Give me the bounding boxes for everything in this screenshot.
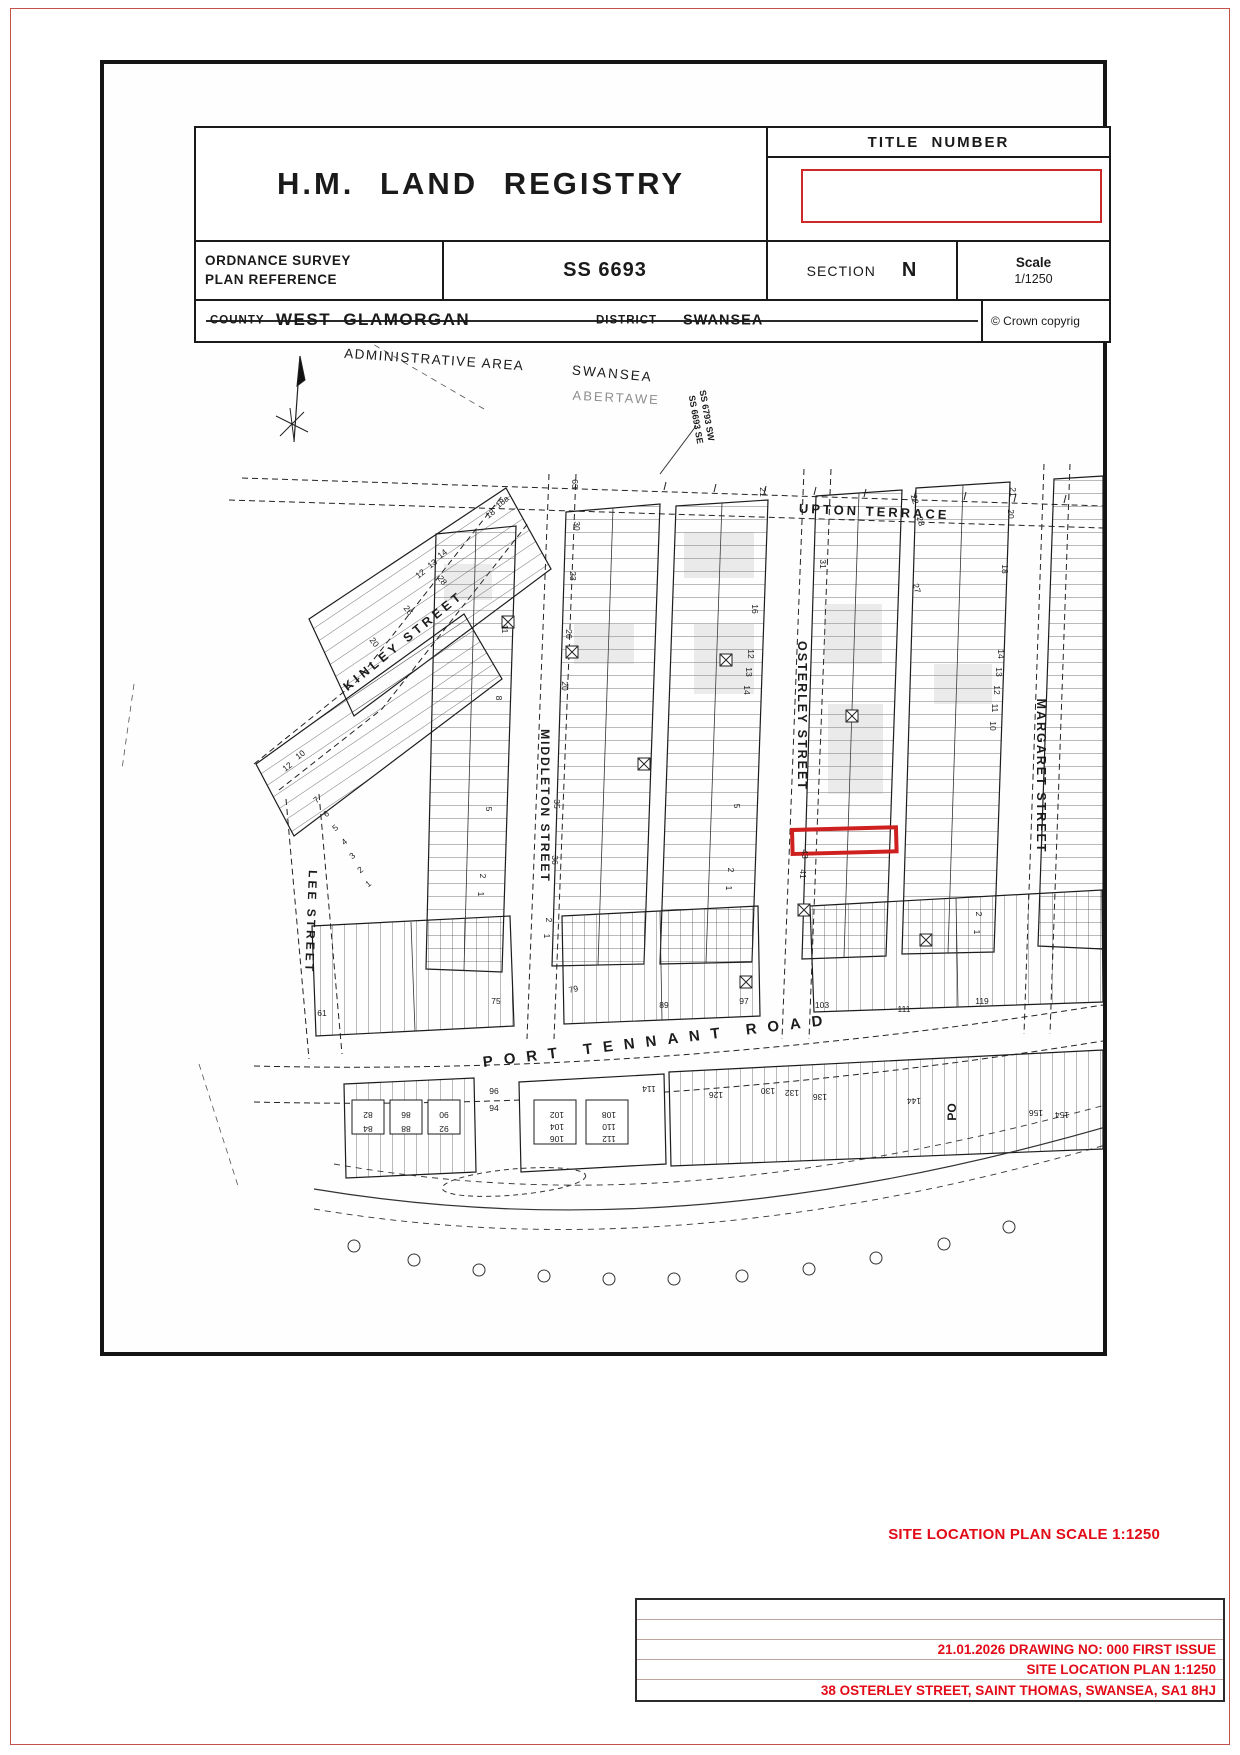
map-plot-number: 14 (996, 649, 1006, 659)
map-plot-number: 2 (478, 874, 488, 879)
map-plot-number: 20 (560, 681, 570, 691)
north-arrow-icon (276, 356, 308, 442)
map-plot-number: 14 (742, 685, 752, 695)
map-plot-number: 5 (484, 807, 494, 812)
map-plot-number: 2 (355, 864, 365, 875)
map-street-label: PO (945, 1103, 959, 1120)
map-plot-number: 86 (401, 1110, 411, 1120)
map-plot-number: SWANSEA (571, 363, 653, 385)
map-plot-number: 82 (363, 1110, 373, 1120)
map-plot-number: 114 (642, 1084, 656, 1094)
map-plot-number: 5 (330, 822, 340, 833)
map-plot-number: 1 (542, 934, 552, 939)
map-plot-number: 16 (750, 604, 760, 614)
map-plot-number: 5 (732, 804, 742, 809)
header-row-3: COUNTY WEST GLAMORGAN DISTRICT SWANSEA ©… (196, 299, 1109, 341)
map-plot-number: 3 (347, 850, 357, 861)
map-plot-number: 11 (990, 704, 1000, 713)
map-plot-number: 2 (544, 918, 554, 923)
title-number-label: TITLE NUMBER (768, 128, 1109, 158)
scale-value: 1/1250 (1014, 271, 1052, 287)
map-plot-number: 1 (724, 886, 734, 891)
land-registry-header: H.M. LAND REGISTRY TITLE NUMBER ORDNANCE… (194, 126, 1111, 343)
map-plot-number: 89 (659, 1000, 669, 1010)
map-plot-number: 41 (798, 869, 808, 879)
map-street-label: OSTERLEY STREET (795, 641, 809, 791)
map-plot-number: 8 (494, 696, 504, 701)
map-plot-number: 90 (439, 1110, 449, 1120)
map-plot-number: 21 (1008, 487, 1018, 497)
grid-ref-tick (660, 426, 696, 474)
map-plot-number: 144 (907, 1096, 921, 1106)
county-value: WEST GLAMORGAN (276, 310, 470, 330)
map-plot-number: 130 (761, 1086, 775, 1096)
map-plot-number: 23 (568, 571, 578, 581)
map-plot-number: 104 (550, 1122, 564, 1132)
scanned-map-sheet: PORT TENNANT ROAD ADMINISTRATIVE AREASWA… (100, 60, 1107, 1356)
trees (348, 1221, 1015, 1285)
scale-cell: Scale 1/1250 (956, 242, 1109, 299)
map-plot-number: 156 (1029, 1108, 1043, 1118)
map-plot-number: 61 (317, 1008, 327, 1018)
map-plot-number: 1 (476, 892, 486, 897)
title-number-body (768, 158, 1109, 240)
section-value: N (902, 259, 917, 282)
map-plot-number: 2 (726, 868, 736, 873)
map-plot-number: 4 (339, 836, 349, 847)
map-plot-number: 18 (1000, 564, 1010, 574)
district-label: DISTRICT (596, 315, 657, 327)
map-plot-number: 11 (500, 625, 510, 634)
map-plot-number: 132 (785, 1088, 799, 1098)
map-plot-number: ABERTAWE (572, 388, 660, 408)
map-plot-number: ADMINISTRATIVE AREA (344, 346, 525, 374)
map-plot-number: 111 (898, 1004, 911, 1014)
map-plot-number: 10 (988, 721, 998, 731)
map-plot-number: 30 (572, 521, 582, 531)
map-plot-number: 26 (564, 629, 574, 639)
map-plot-number: 102 (550, 1110, 564, 1120)
map-plot-number: 12 (992, 685, 1002, 695)
map-plot-number: 97 (739, 996, 749, 1006)
map-plot-number: 112 (602, 1134, 616, 1144)
map-plot-number: 119 (975, 996, 989, 1006)
county-label: COUNTY (210, 315, 265, 327)
housing-blocks (256, 476, 1103, 1178)
map-street-label: MARGARET STREET (1034, 699, 1048, 854)
map-plot-number: 13 (994, 667, 1004, 677)
header-row-1: H.M. LAND REGISTRY TITLE NUMBER (196, 128, 1109, 240)
map-plot-number: 108 (602, 1110, 616, 1120)
map-plot-number: 94 (489, 1103, 499, 1113)
site-location-plan-scale-note: SITE LOCATION PLAN SCALE 1:1250 (888, 1526, 1160, 1543)
crown-copyright: © Crown copyrig (981, 301, 1109, 341)
title-block-line-2: SITE LOCATION PLAN 1:1250 (637, 1660, 1223, 1680)
map-plot-number: 36 (550, 855, 560, 865)
section-label: SECTION (807, 263, 876, 279)
map-plot-number: 1 (972, 930, 982, 935)
map-street-label: MIDDLETON STREET (538, 729, 552, 883)
map-plot-number: 1 (363, 878, 373, 889)
title-number-redbox (801, 169, 1102, 223)
os-plan-reference-label: ORDNANCE SURVEY PLAN REFERENCE (196, 242, 444, 299)
title-block-line-3: 38 OSTERLEY STREET, SAINT THOMAS, SWANSE… (637, 1680, 1223, 1700)
map-plot-number: 106 (550, 1134, 564, 1144)
map-plot-number: 43 (800, 849, 810, 859)
map-plot-number: 35 (552, 799, 562, 809)
os-ref-line2: PLAN REFERENCE (205, 271, 442, 289)
map-plot-number: 136 (813, 1092, 827, 1102)
os-plan-reference-value: SS 6693 (444, 242, 766, 299)
section-cell: SECTION N (766, 242, 956, 299)
title-block-line-1: 21.01.2026 DRAWING NO: 000 FIRST ISSUE (637, 1640, 1223, 1660)
map-plot-number: 84 (363, 1124, 373, 1134)
map-plot-number: 31 (818, 559, 828, 569)
map-plot-number: 154 (1055, 1110, 1069, 1120)
title-number-cell: TITLE NUMBER (768, 128, 1109, 240)
map-plot-number: 126 (709, 1090, 723, 1100)
map-plot-number: 75 (491, 996, 501, 1006)
map-plot-number: 96 (489, 1086, 499, 1096)
map-plot-number: 103 (815, 1000, 829, 1010)
map-plot-number: 13 (744, 667, 754, 677)
map-plot-number: 63 (570, 479, 580, 489)
map-plot-number: 88 (401, 1124, 411, 1134)
os-ref-line1: ORDNANCE SURVEY (205, 252, 442, 270)
map-plot-number: 20 (1006, 509, 1016, 519)
org-title-cell: H.M. LAND REGISTRY (196, 128, 768, 240)
map-plot-number: 12 (746, 649, 756, 659)
map-street-label: LEE STREET (302, 870, 320, 974)
map-plot-number: 21 (758, 487, 768, 497)
map-plot-number: 2 (974, 912, 984, 917)
district-value: SWANSEA (683, 312, 763, 328)
scale-label: Scale (1016, 254, 1051, 272)
scanned-title-plan-page: { "header": { "org_title": "H.M. LAND RE… (0, 0, 1240, 1755)
title-block-empty-row (637, 1620, 1223, 1640)
drawing-title-block: 21.01.2026 DRAWING NO: 000 FIRST ISSUESI… (635, 1598, 1225, 1702)
header-row-2: ORDNANCE SURVEY PLAN REFERENCE SS 6693 S… (196, 240, 1109, 299)
map-plot-number: 92 (439, 1124, 449, 1134)
org-title: H.M. LAND REGISTRY (277, 166, 685, 202)
title-block-empty-row (637, 1600, 1223, 1620)
map-plot-number: 110 (602, 1122, 616, 1132)
